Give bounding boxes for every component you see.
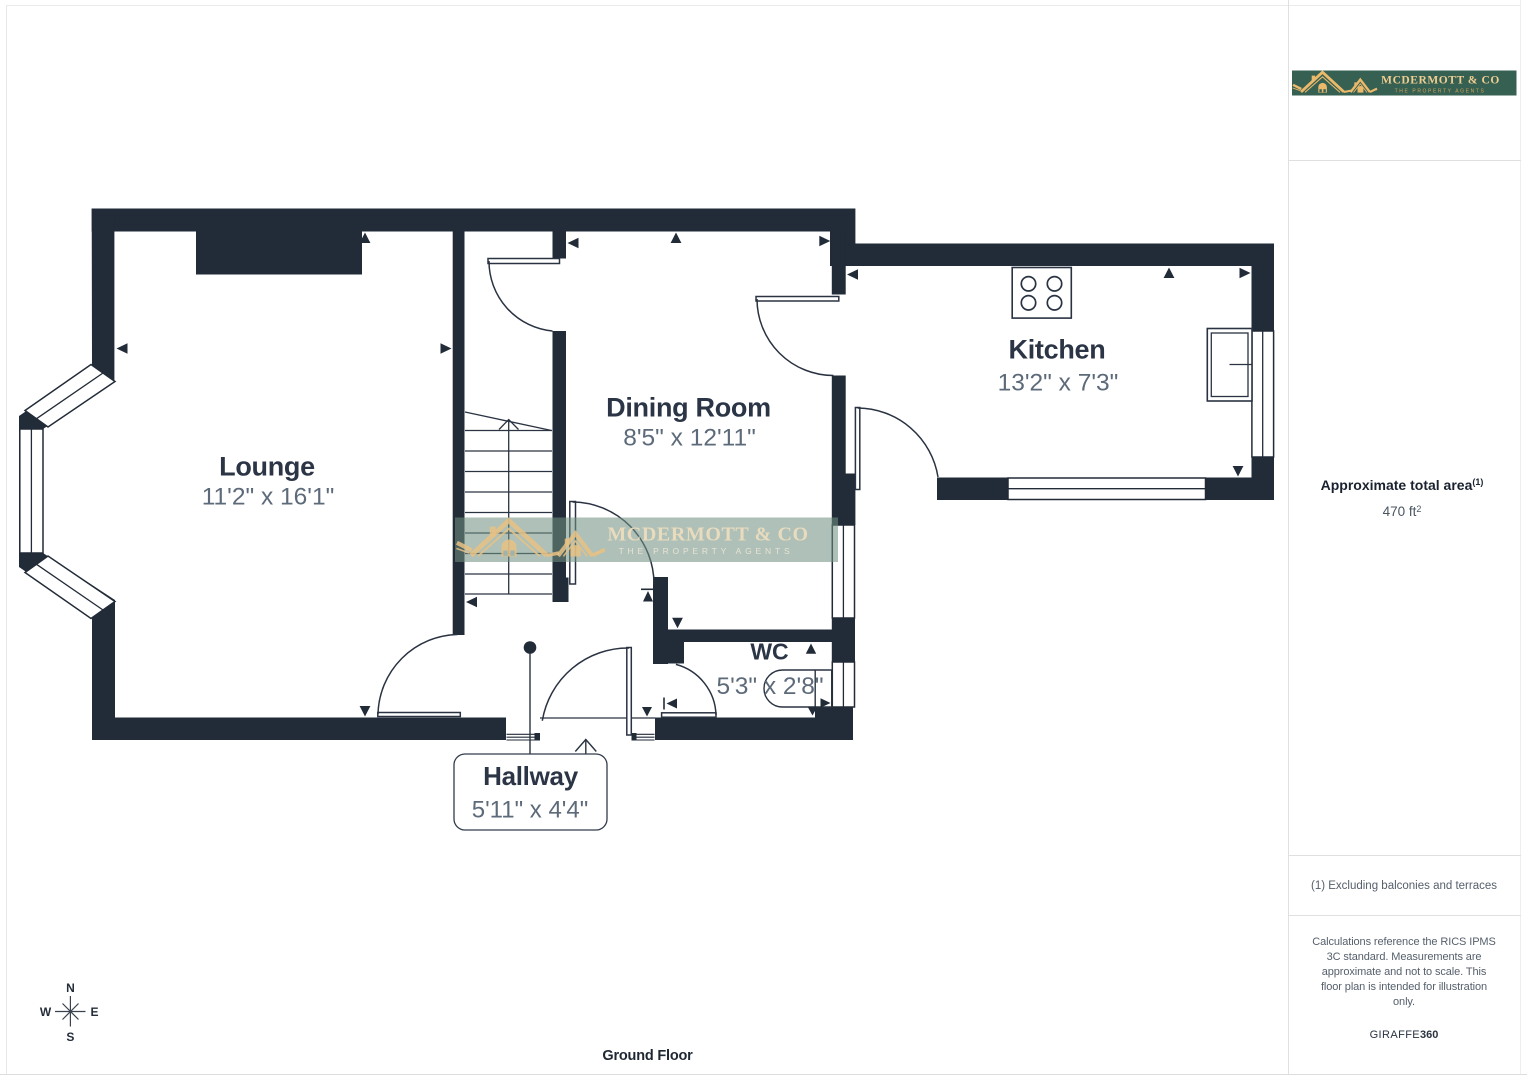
svg-text:(1) Excluding balconies and te: (1) Excluding balconies and terraces xyxy=(1311,880,1497,892)
svg-text:8'5" x 12'11": 8'5" x 12'11" xyxy=(623,425,756,452)
svg-text:11'2" x 16'1": 11'2" x 16'1" xyxy=(202,484,335,511)
svg-text:470 ft2: 470 ft2 xyxy=(1383,504,1422,519)
svg-text:floor plan is intended for ill: floor plan is intended for illustration xyxy=(1321,981,1487,993)
svg-text:Dining Room: Dining Room xyxy=(606,393,771,423)
svg-text:GIRAFFE360: GIRAFFE360 xyxy=(1370,1029,1439,1041)
svg-text:N: N xyxy=(66,981,75,995)
svg-text:Ground Floor: Ground Floor xyxy=(602,1048,693,1064)
svg-text:Approximate total area(1): Approximate total area(1) xyxy=(1321,477,1484,493)
svg-text:Kitchen: Kitchen xyxy=(1009,335,1106,365)
svg-text:13'2" x 7'3": 13'2" x 7'3" xyxy=(998,370,1119,397)
svg-text:THE PROPERTY AGENTS: THE PROPERTY AGENTS xyxy=(619,546,794,556)
svg-text:THE PROPERTY AGENTS: THE PROPERTY AGENTS xyxy=(1395,89,1486,95)
svg-text:MCDERMOTT & CO: MCDERMOTT & CO xyxy=(607,524,808,546)
svg-text:5'3" x 2'8": 5'3" x 2'8" xyxy=(716,673,823,700)
svg-text:S: S xyxy=(66,1030,74,1044)
svg-text:5'11" x 4'4": 5'11" x 4'4" xyxy=(472,797,589,824)
svg-text:only.: only. xyxy=(1393,996,1415,1008)
svg-text:Calculations reference the RIC: Calculations reference the RICS IPMS xyxy=(1312,936,1495,948)
svg-text:E: E xyxy=(90,1005,98,1019)
svg-text:MCDERMOTT & CO: MCDERMOTT & CO xyxy=(1381,75,1500,87)
svg-text:approximate and not to scale.: approximate and not to scale. This xyxy=(1322,966,1487,978)
svg-text:Lounge: Lounge xyxy=(219,452,315,482)
svg-text:3C standard. Measurements are: 3C standard. Measurements are xyxy=(1327,951,1482,963)
svg-text:WC: WC xyxy=(750,639,788,665)
svg-text:Hallway: Hallway xyxy=(483,761,579,791)
svg-text:W: W xyxy=(40,1005,52,1019)
